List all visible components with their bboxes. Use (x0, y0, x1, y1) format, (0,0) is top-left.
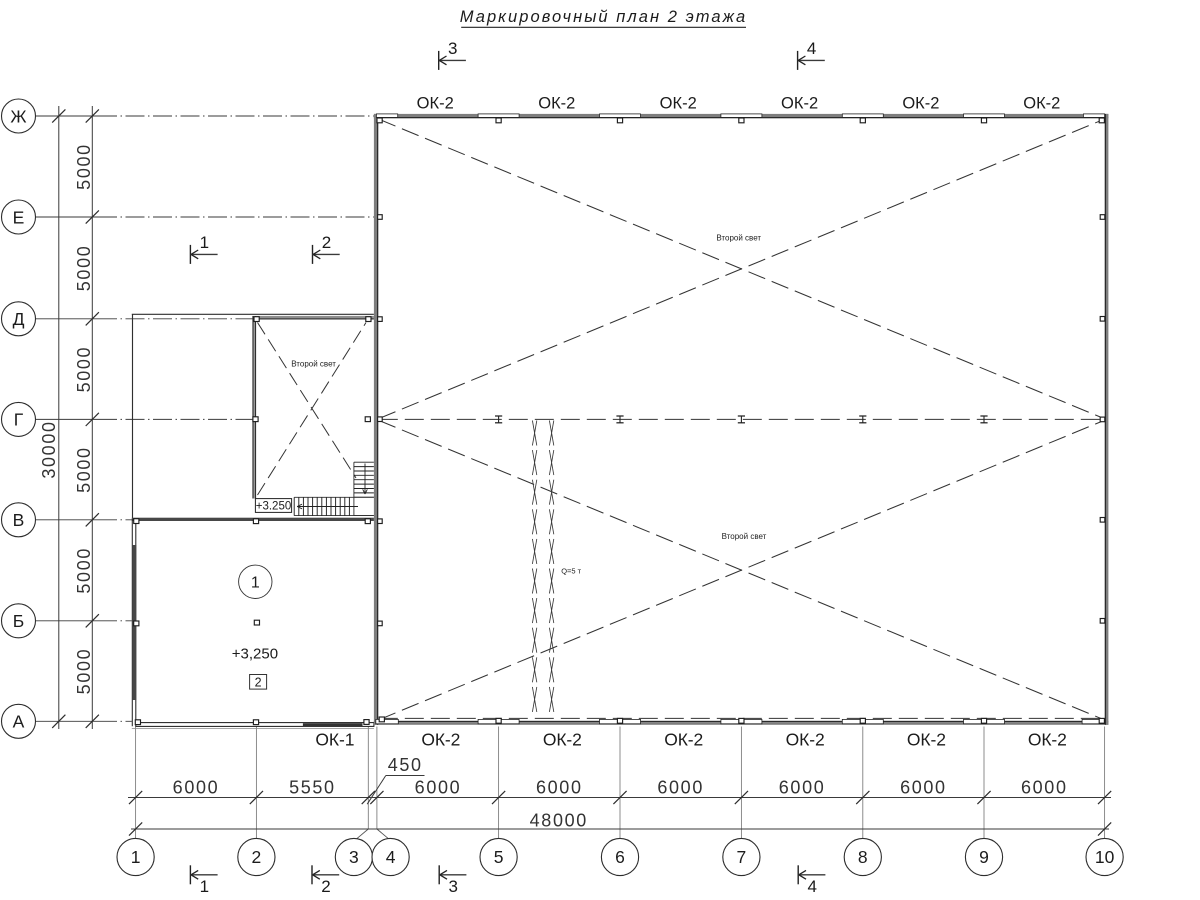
svg-text:6000: 6000 (173, 778, 220, 798)
svg-text:ОК-2: ОК-2 (664, 730, 703, 750)
svg-text:2: 2 (322, 233, 331, 252)
svg-text:1: 1 (131, 847, 141, 867)
svg-text:5550: 5550 (289, 778, 336, 798)
svg-text:ОК-2: ОК-2 (1028, 730, 1067, 750)
svg-text:А: А (13, 712, 25, 732)
svg-text:6000: 6000 (536, 778, 583, 798)
svg-text:Г: Г (14, 410, 24, 430)
svg-text:9: 9 (979, 847, 989, 867)
svg-text:4: 4 (807, 39, 816, 58)
svg-text:30000: 30000 (39, 420, 59, 478)
svg-text:+3.250: +3.250 (256, 501, 292, 513)
svg-text:6: 6 (615, 847, 625, 867)
svg-text:3: 3 (349, 847, 359, 867)
svg-text:Второй свет: Второй свет (291, 359, 336, 368)
svg-text:1: 1 (200, 233, 209, 252)
svg-text:8: 8 (858, 847, 868, 867)
svg-text:6000: 6000 (900, 778, 947, 798)
svg-text:ОК-2: ОК-2 (781, 94, 818, 112)
svg-text:Маркировочный план 2 этажа: Маркировочный план 2 этажа (460, 8, 747, 26)
svg-text:2: 2 (255, 675, 262, 689)
svg-text:ОК-1: ОК-1 (315, 730, 354, 750)
svg-text:ОК-2: ОК-2 (543, 730, 582, 750)
svg-text:5000: 5000 (74, 346, 94, 393)
svg-text:В: В (13, 510, 25, 530)
svg-text:4: 4 (386, 847, 396, 867)
svg-text:5000: 5000 (74, 143, 94, 190)
svg-text:2: 2 (321, 877, 330, 896)
svg-text:ОК-2: ОК-2 (538, 94, 575, 112)
svg-text:ОК-2: ОК-2 (417, 94, 454, 112)
svg-text:5: 5 (494, 847, 504, 867)
svg-text:5000: 5000 (74, 446, 94, 493)
svg-text:ОК-2: ОК-2 (1023, 94, 1060, 112)
svg-text:4: 4 (807, 877, 816, 896)
svg-text:5000: 5000 (74, 547, 94, 594)
svg-text:450: 450 (388, 755, 423, 775)
svg-text:ОК-2: ОК-2 (786, 730, 825, 750)
svg-text:7: 7 (737, 847, 747, 867)
svg-text:10: 10 (1095, 847, 1115, 867)
svg-text:Q=5 т: Q=5 т (561, 567, 581, 576)
svg-text:Д: Д (13, 309, 25, 329)
svg-text:ОК-2: ОК-2 (907, 730, 946, 750)
svg-text:5000: 5000 (74, 648, 94, 695)
svg-text:ОК-2: ОК-2 (660, 94, 697, 112)
svg-text:6000: 6000 (1021, 778, 1068, 798)
svg-text:Е: Е (13, 207, 25, 227)
svg-text:6000: 6000 (657, 778, 704, 798)
svg-text:2: 2 (252, 847, 262, 867)
svg-text:1: 1 (200, 877, 209, 896)
svg-text:Ж: Ж (10, 106, 26, 126)
svg-text:48000: 48000 (530, 810, 588, 830)
svg-text:ОК-2: ОК-2 (421, 730, 460, 750)
svg-text:ОК-2: ОК-2 (902, 94, 939, 112)
svg-text:5000: 5000 (74, 245, 94, 292)
svg-text:3: 3 (448, 877, 457, 896)
svg-text:+3,250: +3,250 (232, 646, 278, 663)
svg-text:3: 3 (448, 39, 457, 58)
svg-text:Второй свет: Второй свет (722, 532, 767, 541)
svg-text:6000: 6000 (779, 778, 826, 798)
svg-text:Б: Б (13, 611, 24, 631)
svg-text:1: 1 (251, 575, 260, 592)
svg-text:6000: 6000 (415, 778, 462, 798)
svg-text:Второй свет: Второй свет (716, 233, 761, 242)
